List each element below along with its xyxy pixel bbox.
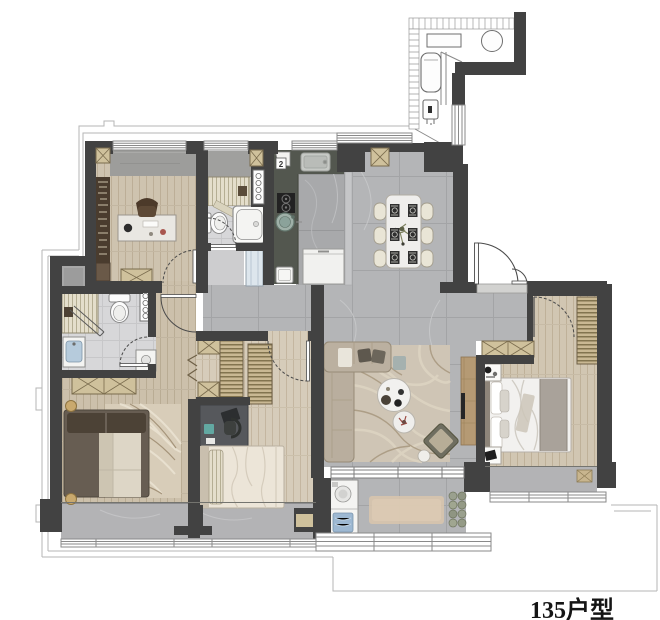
svg-text:135户型: 135户型 — [530, 596, 614, 620]
svg-text:2: 2 — [279, 160, 284, 169]
